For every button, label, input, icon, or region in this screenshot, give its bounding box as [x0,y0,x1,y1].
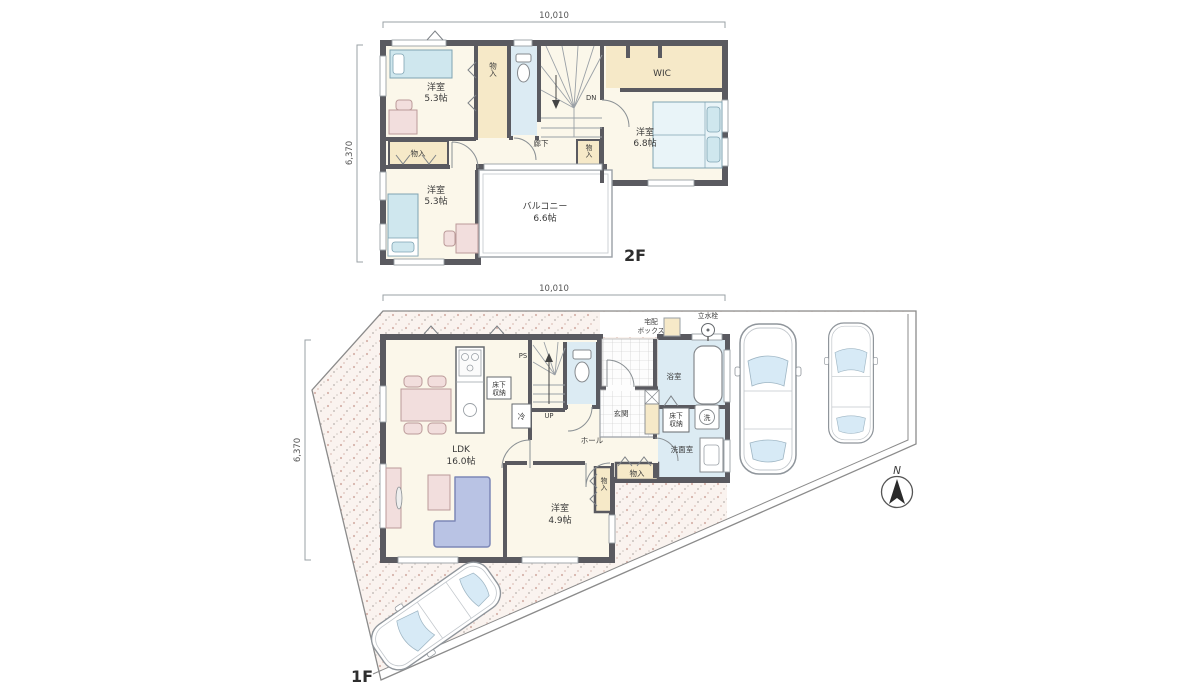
window [380,386,386,422]
tv-board [386,468,402,528]
underfloor-storage-kitchen: 床下 収納 [487,377,511,399]
floor1-height-dimension: 6,370 [293,438,303,462]
pillow [707,137,720,162]
toilet-fixture-2f [516,54,531,82]
sink [464,404,477,417]
floor1-width-dimension: 10,010 [539,284,569,294]
chair [444,231,455,246]
chair [428,376,446,387]
floor1-title: 1F [351,667,373,686]
window [514,40,532,46]
fridge-label: 冷 [518,411,526,421]
underfloor-storage-washroom: 床下 収納 [663,408,689,432]
stairs-dn-label: DN [586,94,596,102]
room-label-ldk: LDK [452,445,471,455]
balcony-label: バルコニー [523,201,568,212]
room-label-entrance: 玄関 [614,408,629,418]
closet-a-2f [478,46,508,138]
kitchen-counter [456,347,484,433]
window [724,350,730,402]
window [722,138,728,166]
chair [404,376,422,387]
floor2-title: 2F [624,246,646,265]
closet-label: 物入 [411,148,426,158]
compass-north-label: N [893,465,901,477]
shoe-cabinet [645,390,659,434]
floor1-plan: 10,010 6,370 [293,284,916,686]
chair [428,423,446,434]
window [484,164,602,170]
stairs-up-label: UP [544,412,553,420]
underfloor-label-1: 床下 [492,380,506,389]
washer-label: 洗 [704,413,711,422]
room-label-bedroom-a: 洋室 [427,81,445,93]
closet-label: 物入 [488,61,497,78]
window [722,100,728,132]
window [724,440,730,472]
window [380,172,386,200]
closet-label: 物入 [584,143,592,158]
floor2-height-dimension: 6,370 [345,141,355,165]
window [380,56,386,96]
compass: N [882,465,913,508]
room-size-bedroom: 4.9帖 [548,514,571,526]
door-gap [450,164,476,170]
closet-label: 物入 [599,476,607,491]
chair [404,423,422,434]
window [609,515,615,543]
door-gap [606,385,635,391]
window [398,557,458,563]
pillow [707,107,720,132]
room-label-bath: 浴室 [667,371,682,381]
window [380,224,386,250]
window [648,180,694,186]
porch-tiles [602,339,658,386]
room-size-ldk: 16.0帖 [446,455,475,467]
room-label-hall: ホール [581,436,604,445]
car-parked-1 [735,324,801,474]
room-label-bedroom: 洋室 [551,502,569,514]
window [522,557,578,563]
window [380,464,386,528]
underfloor-label-2: 収納 [492,388,506,397]
floor-plan-page: 10,010 6,370 [0,0,1200,700]
door-gap [652,439,658,463]
floor2-width-dimension: 10,010 [539,11,569,21]
bed-single-b [388,194,418,256]
room-label-bedroom-b: 洋室 [427,184,445,196]
underfloor-label-2: 収納 [669,419,683,428]
washing-machine: 洗 [695,405,719,429]
door-gap [568,404,592,410]
wic-area [606,46,722,88]
room-size-bedroom-a: 5.3帖 [424,92,447,104]
balcony-size: 6.6帖 [533,212,556,224]
room-label-wic: WIC [653,69,671,79]
window [394,259,444,265]
vanity [700,438,723,472]
room-label-washroom: 洗面室 [671,444,694,454]
pillow [393,54,404,74]
chair [396,100,412,110]
room-label-bedroom-c: 洋室 [636,126,654,138]
tap-label: 立水栓 [698,311,719,320]
tv [396,487,402,509]
room-label-corridor: 廊下 [534,138,549,148]
bed-single-a [390,50,452,78]
floor-plan-canvas: 10,010 6,370 [0,0,1200,700]
ps-label: PS [519,352,527,360]
pillow [392,242,414,252]
dining-table [401,389,451,421]
window [392,40,446,46]
floor2-plan: 10,010 6,370 [345,11,728,265]
bed-double [653,102,722,168]
room-size-bedroom-c: 6.8帖 [633,137,656,149]
delivery-box-label-2: ボックス [638,327,665,335]
refrigerator: 冷 [512,404,531,428]
low-table [428,475,450,510]
room-size-bedroom-b: 5.3帖 [424,195,447,207]
stove [459,350,481,376]
high-window-mark [427,31,443,40]
delivery-box-label-1: 宅配 [644,317,658,326]
bathtub [694,346,722,404]
closet-label: 物入 [630,468,645,478]
underfloor-label-1: 床下 [669,411,683,420]
car-parked-2 [825,323,878,443]
